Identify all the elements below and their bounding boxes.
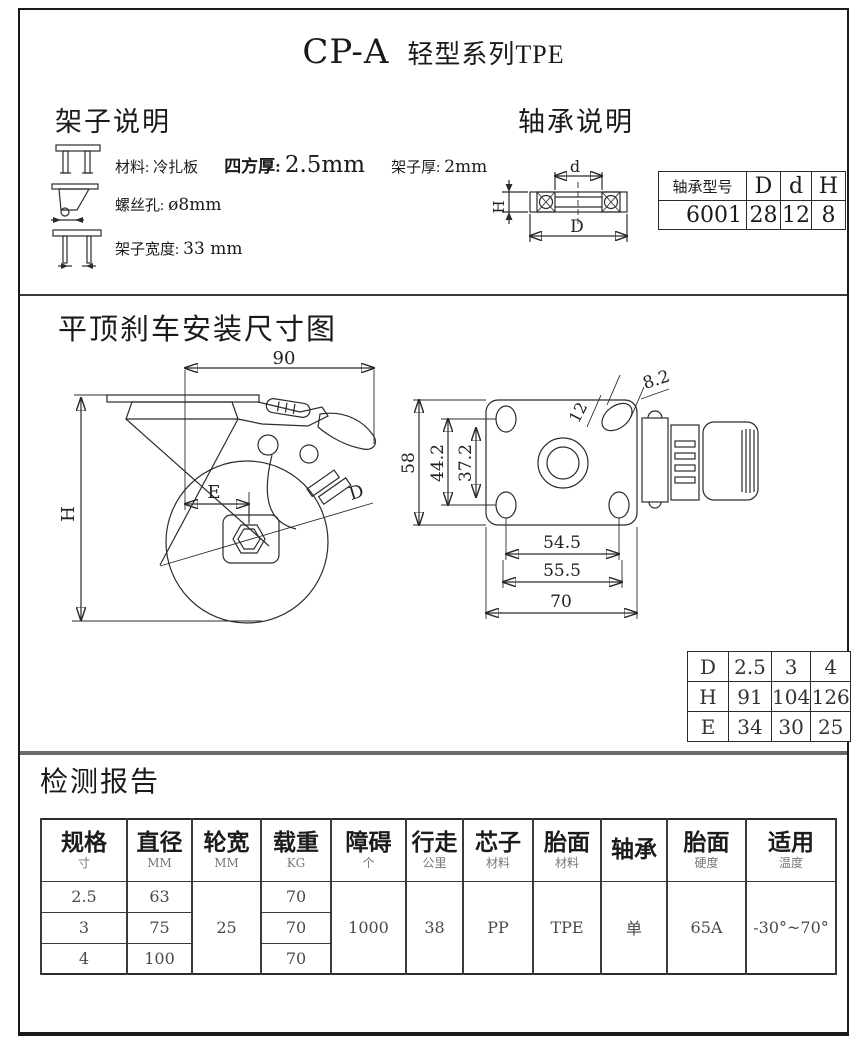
bearing-cross-section-diagram: d H D [497, 162, 652, 262]
material-label: 材料: [115, 160, 149, 176]
material-value: 冷扎板 [153, 160, 198, 176]
dim-12-label: 12 [565, 399, 591, 426]
col-tread-hardness: 胎面硬度 [667, 819, 746, 881]
bearing-D-value: 28 [747, 201, 781, 230]
frame-spec-line-2: 螺丝孔: ø8mm [115, 194, 221, 215]
dhe-E-v1: 34 [729, 712, 772, 742]
col-temperature: 适用温度 [746, 819, 836, 881]
series-name: 轻型系列TPE [407, 40, 564, 69]
diameter-value: 63 [127, 881, 192, 912]
section-divider-bottom [20, 751, 847, 755]
bearing-table-header-D: D [747, 172, 781, 201]
dim-58-label: 58 [399, 452, 419, 474]
load-value: 70 [261, 943, 331, 974]
frame-spec-line-1: 材料: 冷扎板 四方厚: 2.5mm 架子厚: 2mm [115, 152, 487, 178]
distance-value: 38 [406, 881, 463, 974]
diameter-value: 75 [127, 912, 192, 943]
bearing-d-value: 12 [781, 201, 812, 230]
dim-54-5-label: 54.5 [543, 533, 581, 553]
report-section-heading: 检测报告 [40, 760, 160, 800]
bearing-table-header-d: d [781, 172, 812, 201]
screw-hole-value: ø8mm [168, 195, 221, 215]
bearing-dim-h-label: H [490, 200, 508, 213]
frame-width-value: 33 mm [183, 239, 242, 259]
model-code: CP-A [302, 32, 389, 72]
frame-thickness-label: 架子厚: [391, 160, 440, 176]
screw-hole-label: 螺丝孔: [115, 198, 164, 214]
bearing-type-value: 单 [601, 881, 667, 974]
frame-width-icon [52, 228, 102, 272]
bearing-model-value: 6001 [659, 201, 747, 230]
dhe-H-label: H [688, 682, 729, 712]
dhe-D-v1: 2.5 [729, 652, 772, 682]
dim-55-5-label: 55.5 [543, 561, 581, 581]
dhe-E-v3: 25 [811, 712, 851, 742]
wheel-width-value: 25 [192, 881, 261, 974]
hardness-value: 65A [667, 881, 746, 974]
bearing-table-header-model: 轴承型号 [659, 172, 747, 201]
col-distance: 行走公里 [406, 819, 463, 881]
spec-value: 3 [41, 912, 127, 943]
bearing-table-header-H: H [812, 172, 846, 201]
table-row: E 34 30 25 [688, 712, 851, 742]
core-material-value: PP [463, 881, 533, 974]
diameter-value: 100 [127, 943, 192, 974]
col-tread-material: 胎面材料 [533, 819, 601, 881]
bearing-H-value: 8 [812, 201, 846, 230]
table-row: H 91 104 126 [688, 682, 851, 712]
temperature-value: -30°~70° [746, 881, 836, 974]
size-variant-table: D 2.5 3 4 H 91 104 126 E 34 30 25 [687, 651, 851, 742]
spec-sheet-page: CP-A轻型系列TPE 架子说明 材料: 冷扎板 四方厚: 2.5mm 架子厚:… [0, 0, 867, 1048]
frame-thickness-value: 2mm [444, 157, 487, 177]
report-row-2-5: 2.5 63 25 70 1000 38 PP TPE 单 65A -30°~7… [41, 881, 836, 912]
bearing-dim-d-label: d [570, 157, 580, 176]
table-row: D 2.5 3 4 [688, 652, 851, 682]
dhe-E-label: E [688, 712, 729, 742]
dhe-D-v3: 4 [811, 652, 851, 682]
dhe-H-v2: 104 [772, 682, 811, 712]
test-report-table: 规格寸 直径MM 轮宽MM 载重KG 障碍个 行走公里 芯子材料 胎面材料 轴承… [40, 818, 837, 975]
col-wheel-width: 轮宽MM [192, 819, 261, 881]
dhe-H-v1: 91 [729, 682, 772, 712]
tread-material-value: TPE [533, 881, 601, 974]
frame-spec-line-3: 架子宽度: 33 mm [115, 238, 242, 259]
dhe-D-label: D [688, 652, 729, 682]
load-value: 70 [261, 881, 331, 912]
col-bearing: 轴承 [601, 819, 667, 881]
spec-value: 2.5 [41, 881, 127, 912]
dhe-E-v2: 30 [772, 712, 811, 742]
plate-top-view-drawing: 58 44.2 37.2 12 8.2 54.5 55.5 70 [405, 355, 805, 655]
square-thickness-label: 四方厚: [224, 157, 281, 176]
dim-D-label: D [346, 481, 366, 505]
bearing-spec-table: 轴承型号 D d H 6001 28 12 8 [658, 171, 846, 230]
frame-fork-side-icon [50, 184, 102, 224]
caster-side-view-drawing: 90 H [62, 352, 402, 644]
obstacle-value: 1000 [331, 881, 406, 974]
report-header-row: 规格寸 直径MM 轮宽MM 载重KG 障碍个 行走公里 芯子材料 胎面材料 轴承… [41, 819, 836, 881]
col-diameter: 直径MM [127, 819, 192, 881]
frame-width-label: 架子宽度: [115, 242, 179, 258]
dim-70-label: 70 [550, 592, 572, 612]
install-section-heading: 平顶刹车安装尺寸图 [58, 306, 337, 348]
dhe-D-v2: 3 [772, 652, 811, 682]
dim-44-2-label: 44.2 [428, 444, 448, 482]
col-core-material: 芯子材料 [463, 819, 533, 881]
frame-section-heading: 架子说明 [55, 100, 171, 139]
dim-37-2-label: 37.2 [456, 444, 476, 482]
frame-top-view-icon [55, 143, 101, 177]
section-divider-top [20, 294, 847, 296]
col-obstacle: 障碍个 [331, 819, 406, 881]
dim-E-label: E [207, 482, 220, 503]
dim-90-label: 90 [273, 348, 296, 369]
square-thickness-value: 2.5mm [285, 152, 365, 178]
dhe-H-v3: 126 [811, 682, 851, 712]
page-title: CP-A轻型系列TPE [0, 32, 867, 72]
bearing-section-heading: 轴承说明 [518, 100, 634, 139]
spec-value: 4 [41, 943, 127, 974]
dim-H-label: H [58, 506, 79, 522]
load-value: 70 [261, 912, 331, 943]
col-load: 载重KG [261, 819, 331, 881]
bearing-dim-D-label: D [570, 217, 584, 237]
col-spec: 规格寸 [41, 819, 127, 881]
